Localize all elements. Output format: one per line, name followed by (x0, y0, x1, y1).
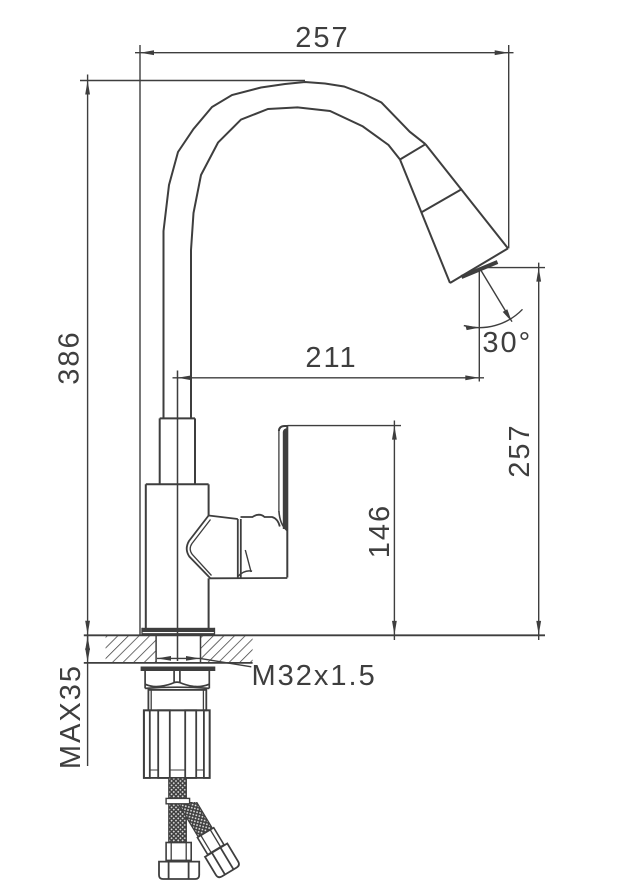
svg-text:386: 386 (54, 330, 86, 384)
svg-text:257: 257 (504, 423, 536, 477)
svg-text:211: 211 (305, 342, 357, 374)
svg-text:MAX35: MAX35 (55, 664, 87, 769)
svg-text:M32x1.5: M32x1.5 (252, 660, 377, 692)
svg-text:30°: 30° (482, 327, 532, 359)
svg-text:146: 146 (364, 504, 396, 558)
svg-text:257: 257 (295, 22, 349, 54)
